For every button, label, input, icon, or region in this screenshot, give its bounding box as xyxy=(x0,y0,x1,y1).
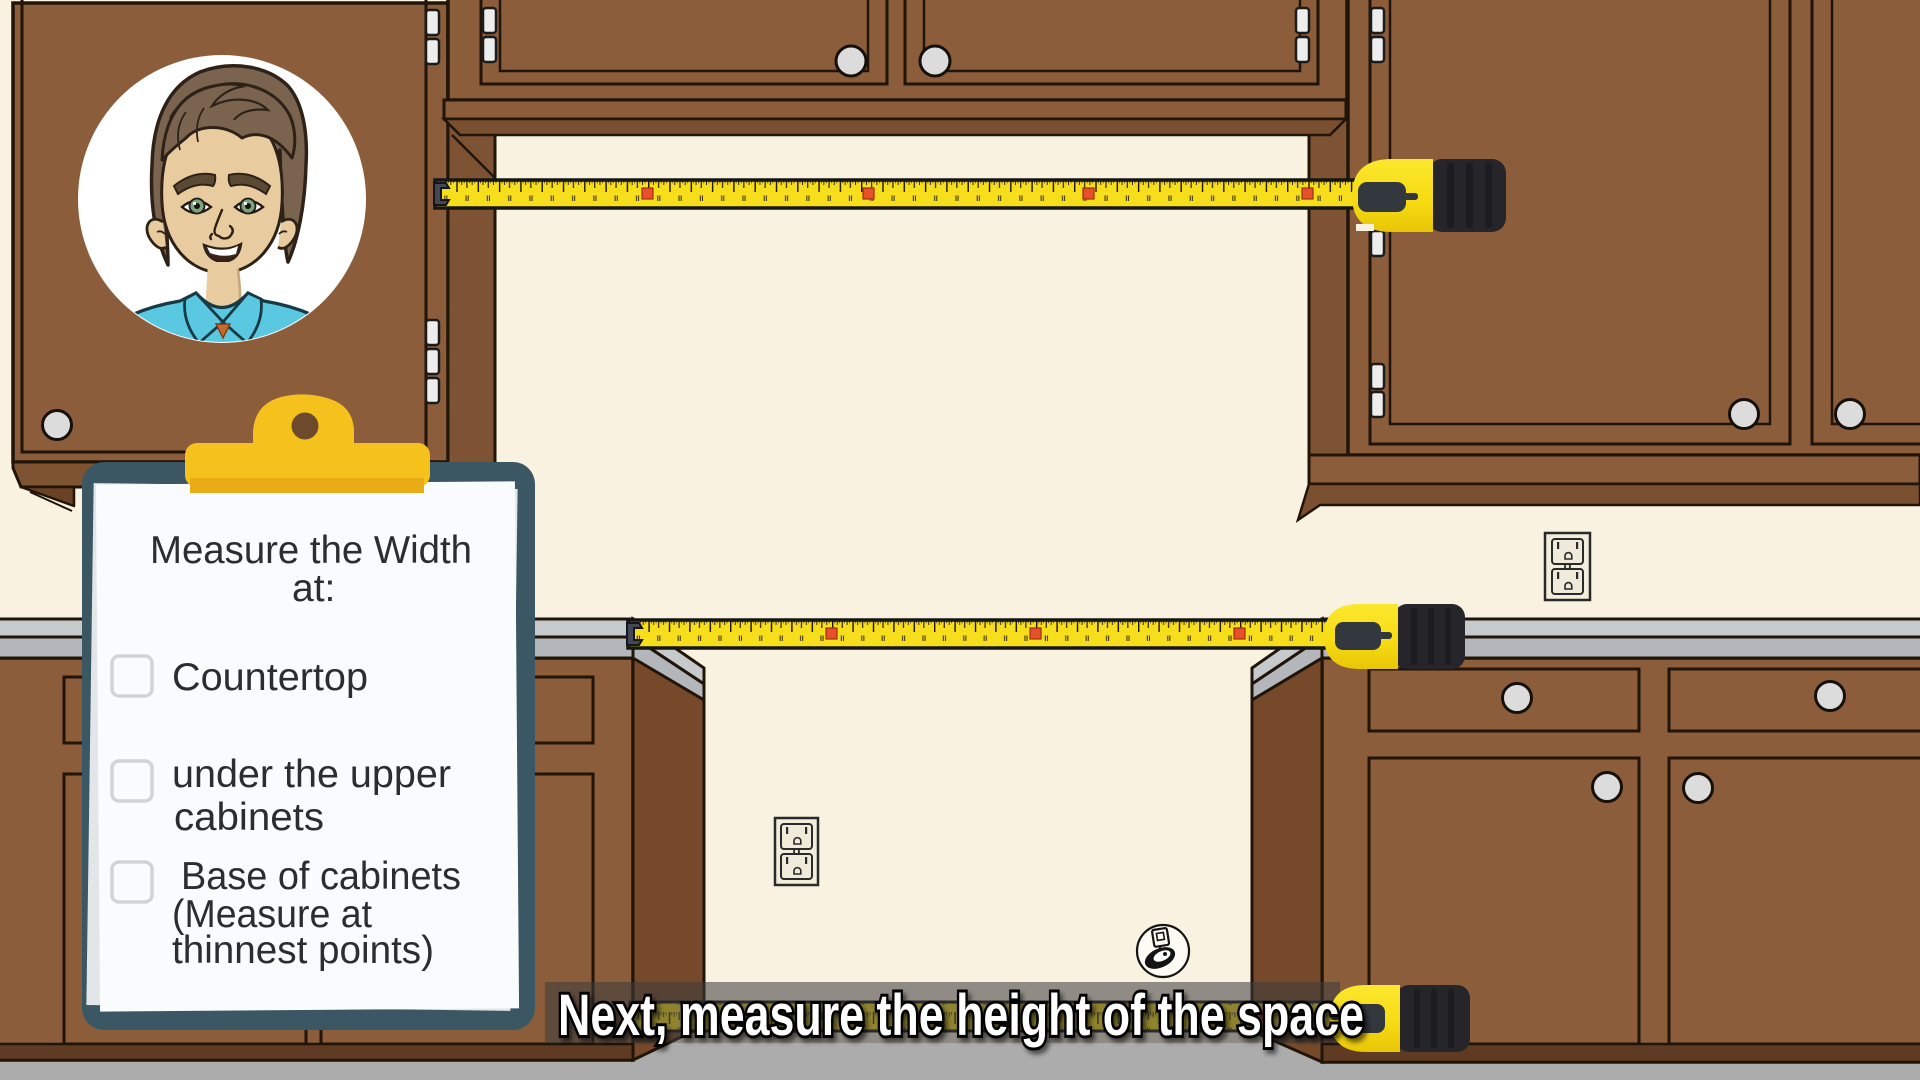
svg-text:Countertop: Countertop xyxy=(172,656,368,699)
svg-text:Measure the Width: Measure the Width xyxy=(150,529,472,572)
svg-text:under the upper: under the upper xyxy=(172,753,451,796)
svg-text:cabinets: cabinets xyxy=(174,796,324,839)
svg-text:Next, measure the height of th: Next, measure the height of the space xyxy=(558,983,1364,1048)
svg-text:Base of cabinets: Base of cabinets xyxy=(181,855,461,898)
svg-text:thinnest points): thinnest points) xyxy=(172,929,434,972)
svg-text:at:: at: xyxy=(292,567,335,610)
